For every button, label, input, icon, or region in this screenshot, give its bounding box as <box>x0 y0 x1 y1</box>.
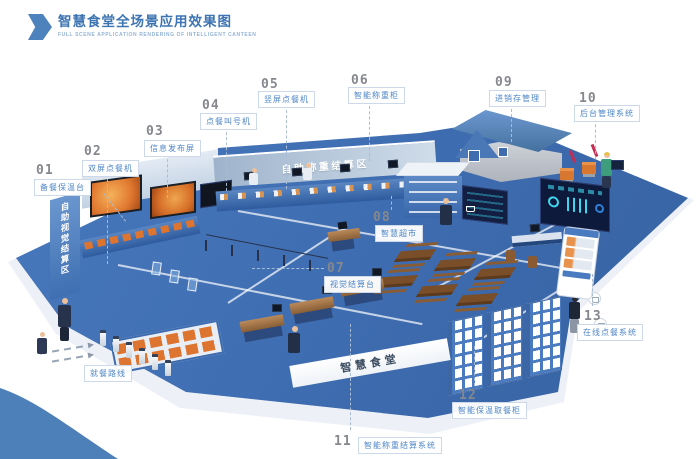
route-dash <box>76 355 83 358</box>
callout-06-leader <box>369 101 370 161</box>
callout-09-leader <box>511 104 512 142</box>
visitor-head <box>62 298 68 304</box>
speed-gate <box>151 261 162 275</box>
callout-10-label: 后台管理系统 <box>574 105 640 122</box>
callout-09-label: 进销存管理 <box>489 90 546 107</box>
left-entrance-pillar: 自助视觉结算区 <box>50 192 80 301</box>
dashboard-bars-icon <box>567 197 591 214</box>
callout-11-number: 11 <box>334 434 352 449</box>
page-title: 智慧食堂全场景应用效果图 <box>58 14 256 30</box>
ordering-terminal-icon <box>292 168 303 177</box>
route-dash <box>64 347 71 350</box>
kiosk-canopy <box>396 162 470 176</box>
turnstile-post <box>139 348 145 364</box>
desk-monitor <box>530 224 541 233</box>
warehouse-window <box>468 150 480 162</box>
menu-screen-food-1 <box>90 174 142 217</box>
turnstile-post <box>126 342 132 358</box>
dashboard-gauge-icon <box>595 203 604 213</box>
speed-gate <box>169 269 180 283</box>
dining-route-label: 就餐路线 <box>84 365 132 382</box>
dashboard-screen-small <box>462 185 508 225</box>
callout-12-number: 12 <box>459 388 477 403</box>
worker-tablet-screen <box>611 160 624 170</box>
pallet-boxes <box>560 168 574 180</box>
route-arrow-icon <box>88 352 95 359</box>
visitor-head <box>292 326 298 332</box>
callout-04-leader <box>226 127 227 191</box>
checkout-laptop <box>338 221 348 229</box>
pickup-locker <box>487 305 523 387</box>
visitor-figure <box>288 333 300 353</box>
dashboard-gauge-icon <box>548 196 559 208</box>
callout-01-number: 01 <box>36 163 54 178</box>
visitor-figure <box>58 305 71 327</box>
callout-03-label: 信息发布屏 <box>144 140 201 157</box>
worker-legs <box>602 176 611 188</box>
callout-08-label: 智慧超市 <box>375 225 423 242</box>
page-subtitle: FULL SCENE APPLICATION RENDERING OF INTE… <box>58 32 256 38</box>
route-arrow-icon <box>88 342 95 349</box>
queue-post <box>231 245 233 256</box>
callout-03-leader <box>167 154 168 198</box>
header: 智慧食堂全场景应用效果图 FULL SCENE APPLICATION REND… <box>28 14 256 40</box>
callout-06-label: 智能称重柜 <box>348 87 405 104</box>
callout-12-leader <box>474 346 475 386</box>
queue-post <box>283 255 285 266</box>
callout-02-number: 02 <box>84 144 102 159</box>
callout-13-label: 在线点餐系统 <box>577 324 643 341</box>
queue-post <box>257 250 259 261</box>
callout-02-label: 双屏点餐机 <box>82 160 139 177</box>
callout-05-label: 竖屏点餐机 <box>258 91 315 108</box>
visitor-legs <box>60 327 69 341</box>
callout-13-number: 13 <box>584 309 602 324</box>
callout-11-leader <box>350 324 351 430</box>
weighing-cabinet-icon <box>340 164 351 173</box>
worker-head <box>604 152 610 158</box>
weighing-cabinet-icon <box>388 160 399 169</box>
pickup-locker <box>448 314 484 396</box>
turnstile-post <box>152 354 158 370</box>
menu-screen-food-2 <box>150 181 196 219</box>
callout-02-leader <box>107 174 108 264</box>
chair <box>528 256 537 268</box>
turnstile-post <box>165 360 171 376</box>
turnstile-post <box>113 336 119 352</box>
callout-11-label: 智能称重结算系统 <box>358 437 442 454</box>
infographic-canvas: 智慧食堂全场景应用效果图 FULL SCENE APPLICATION REND… <box>0 0 700 459</box>
manager-head <box>443 198 449 204</box>
callout-09-number: 09 <box>495 75 513 90</box>
queue-post <box>205 240 207 251</box>
cart-icon <box>466 206 475 212</box>
callout-13-leader <box>592 274 593 306</box>
callout-01-label: 备餐保温台 <box>34 179 91 196</box>
callout-06-number: 06 <box>351 73 369 88</box>
dashboard-screen-large <box>540 178 610 233</box>
callout-07-number: 07 <box>327 261 345 276</box>
callout-04-label: 点餐叫号机 <box>200 113 257 130</box>
pickup-locker <box>526 296 562 378</box>
queue-post <box>309 260 311 271</box>
route-dash <box>52 349 59 352</box>
callout-08-number: 08 <box>373 210 391 225</box>
visitor-head <box>40 332 45 337</box>
title-arrow-icon <box>28 14 52 40</box>
settlement-monitor <box>272 304 282 312</box>
turnstile-post <box>100 330 106 346</box>
route-dash <box>64 357 71 360</box>
staff-figure <box>249 173 258 185</box>
callout-12-label: 智能保温取餐柜 <box>452 402 527 419</box>
callout-10-number: 10 <box>579 91 597 106</box>
route-dash <box>52 359 59 362</box>
settlement-monitor <box>372 268 382 276</box>
callout-10-leader <box>595 119 596 159</box>
manager-figure <box>440 205 452 225</box>
speed-gate <box>187 277 198 291</box>
kiosk-shelves <box>404 176 462 218</box>
visual-settlement-zone-sign: 自助视觉结算区 <box>59 200 71 297</box>
callout-05-leader <box>286 105 287 189</box>
menu-item-row <box>563 258 592 270</box>
callout-03-number: 03 <box>146 124 164 139</box>
visitor-figure <box>37 338 47 354</box>
callout-05-number: 05 <box>261 77 279 92</box>
customer-figure <box>569 302 580 319</box>
corner-wave-decoration <box>0 378 130 459</box>
warehouse-window <box>498 147 508 157</box>
callout-08-leader <box>391 196 392 210</box>
staff-figure <box>303 168 312 180</box>
pallet-boxes <box>582 162 596 174</box>
callout-07-label: 视觉结算台 <box>324 276 381 293</box>
callout-07-leader <box>252 268 324 269</box>
callout-04-number: 04 <box>202 98 220 113</box>
